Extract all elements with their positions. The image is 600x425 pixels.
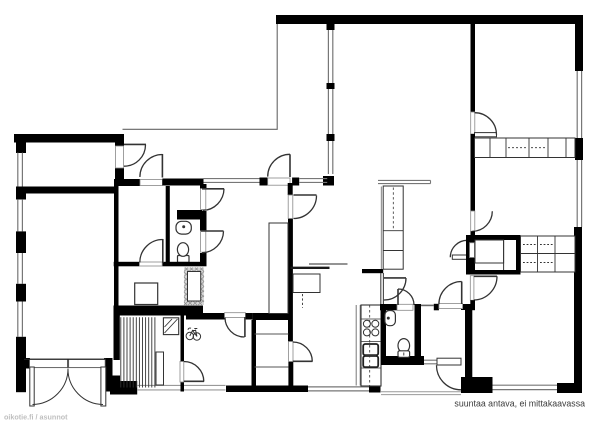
svg-text:oikotie.fi / asunnot: oikotie.fi / asunnot	[4, 413, 68, 422]
svg-text:suuntaa antava, ei mittakaavas: suuntaa antava, ei mittakaavassa	[454, 399, 585, 409]
